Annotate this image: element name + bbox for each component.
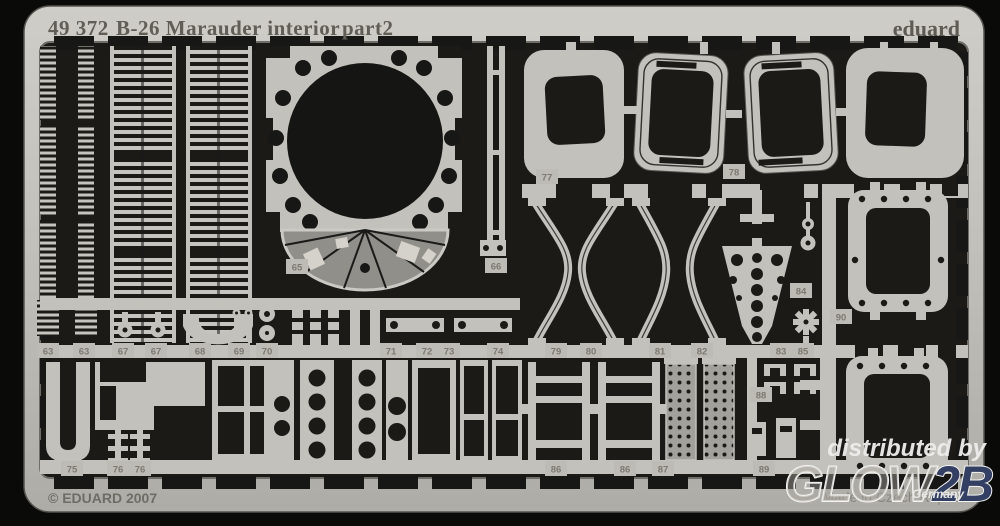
runner-bar-mid-left <box>40 298 520 310</box>
part-number-86: 86 <box>620 465 631 476</box>
part-number-74: 74 <box>493 347 504 358</box>
part-75-u-channel <box>46 362 90 462</box>
logo-2b-part: 2B <box>931 456 993 512</box>
part-number-63: 63 <box>79 347 90 358</box>
window-grid-frame <box>212 360 270 460</box>
part-number-75: 75 <box>67 465 78 476</box>
distributor-logo: GLOW2B <box>785 456 993 512</box>
brand-logo-text: eduard <box>893 16 960 41</box>
part-number-76: 76 <box>113 465 124 476</box>
part-number-72: 72 <box>422 347 433 358</box>
part-number-67: 67 <box>151 347 162 358</box>
turret-ring-opening <box>287 63 443 219</box>
part-number-63: 63 <box>43 347 54 358</box>
part-number-71: 71 <box>386 347 397 358</box>
part-77-window-frame-a <box>524 50 624 178</box>
part-90-rivet-frame <box>848 182 948 320</box>
part-number-67: 67 <box>118 347 129 358</box>
part-number-68: 68 <box>195 347 206 358</box>
part-number-90: 90 <box>836 313 847 324</box>
part-number-89: 89 <box>759 465 770 476</box>
part-number-80: 80 <box>586 347 597 358</box>
logo-glow-part: GLOW <box>785 456 938 512</box>
part-number-70: 70 <box>262 347 273 358</box>
part-number-69: 69 <box>234 347 245 358</box>
part-78-window-frame-b <box>633 52 729 175</box>
part-number-66: 66 <box>491 262 502 273</box>
part-number-76: 76 <box>135 465 146 476</box>
part-number-85: 85 <box>798 347 809 358</box>
part-number-87: 87 <box>658 465 669 476</box>
part-number-65: 65 <box>292 263 303 274</box>
part-number-78: 78 <box>729 168 740 179</box>
part-number-81: 81 <box>655 347 666 358</box>
part-number-73: 73 <box>444 347 455 358</box>
window-frame-d <box>846 48 964 178</box>
photo-canvas: 6363676768697065667172737477787980818283… <box>0 0 1000 526</box>
part-number-79: 79 <box>551 347 562 358</box>
product-title: B-26 Marauder interior <box>116 16 340 40</box>
part-65-turret-ring <box>266 46 462 290</box>
copyright-text: © EDUARD 2007 <box>48 490 157 506</box>
bottom-left-plate <box>95 362 205 430</box>
part-78-window-frame-c <box>743 52 839 175</box>
bottom-window-frames <box>412 360 522 460</box>
watermark-country: Germany <box>912 487 965 501</box>
part-number-86: 86 <box>551 465 562 476</box>
part-number-83: 83 <box>776 347 787 358</box>
etched-fret-photo: 6363676768697065667172737477787980818283… <box>0 0 1000 526</box>
sheet-part-label: part2 <box>342 16 394 40</box>
catalog-number: 49 372 <box>48 16 109 40</box>
part-number-84: 84 <box>796 287 807 298</box>
part-number-88: 88 <box>756 391 767 402</box>
part-number-77: 77 <box>542 173 553 184</box>
part-number-82: 82 <box>697 347 708 358</box>
